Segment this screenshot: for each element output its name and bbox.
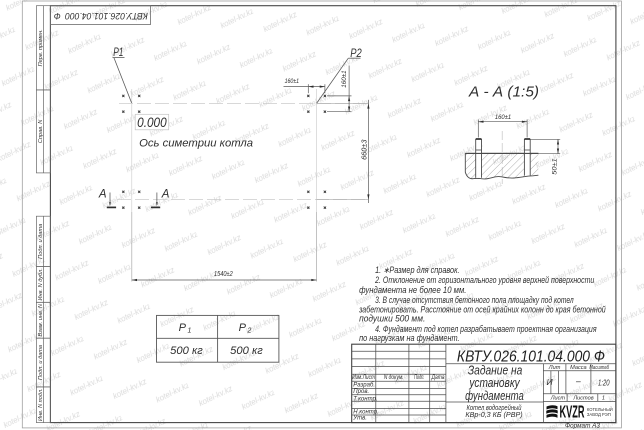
svg-text:P1: P1 (113, 47, 123, 59)
svg-text:Инв. N дубл.: Инв. N дубл. (38, 268, 44, 300)
svg-text:ЗАВОД РЭП: ЗАВОД РЭП (587, 412, 611, 417)
svg-text:50±1: 50±1 (551, 158, 558, 175)
svg-text:КВТУ.026.101.04.000 Ф: КВТУ.026.101.04.000 Ф (54, 10, 148, 21)
svg-text:Пров.: Пров. (353, 389, 369, 395)
svg-text:А - А (1:5): А - А (1:5) (468, 84, 539, 101)
svg-text:Н.контр.: Н.контр. (353, 409, 378, 415)
svg-text:KVZR: KVZR (560, 402, 585, 422)
svg-text:Масса: Масса (570, 365, 587, 371)
svg-text:160±1: 160±1 (285, 78, 300, 85)
svg-text:Утв.: Утв. (352, 416, 367, 422)
svg-text:Листов: Листов (572, 395, 593, 401)
svg-text:Лист: Лист (550, 395, 566, 401)
svg-text:по нагрузкам на фундамент.: по нагрузкам на фундамент. (359, 333, 460, 343)
svg-text:660±3: 660±3 (361, 139, 368, 159)
svg-text:P2: P2 (350, 48, 362, 60)
svg-text:Перв. примен.: Перв. примен. (38, 29, 44, 66)
svg-text:Справ. N: Справ. N (38, 119, 44, 143)
svg-text:500 кг: 500 кг (230, 345, 263, 357)
svg-text:1540±2: 1540±2 (214, 271, 233, 278)
svg-text:Масштаб: Масштаб (589, 365, 609, 371)
svg-text:КОТЕЛЬНЫЙ: КОТЕЛЬНЫЙ (587, 405, 613, 412)
svg-text:160±1: 160±1 (495, 114, 511, 121)
svg-text:А: А (161, 189, 170, 201)
svg-text:Лит: Лит (548, 365, 561, 371)
svg-text:Инв. N подл.: Инв. N подл. (38, 388, 44, 421)
svg-text:N докум.: N докум. (384, 375, 404, 381)
svg-text:И: И (547, 377, 554, 387)
svg-text:1: 1 (602, 395, 605, 401)
svg-text:1:20: 1:20 (598, 377, 610, 387)
svg-text:160±1: 160±1 (341, 70, 348, 88)
svg-text:Формат А3: Формат А3 (565, 423, 600, 430)
svg-text:фундамента не более 10 мм.: фундамента не более 10 мм. (359, 285, 466, 295)
svg-text:Подп. и дата: Подп. и дата (38, 224, 44, 259)
svg-text:Котел водогрейный: Котел водогрейный (467, 404, 522, 412)
svg-text:Подп. и дата: Подп. и дата (38, 345, 44, 380)
svg-text:Т.контр.: Т.контр. (353, 396, 377, 402)
svg-text:0.000: 0.000 (137, 115, 167, 130)
svg-text:–: – (575, 376, 581, 386)
svg-text:2. Отклонение от горизонтально: 2. Отклонение от горизонтального уровня … (374, 275, 594, 285)
svg-text:Разраб.: Разраб. (353, 382, 375, 388)
svg-text:3. В случае отсутствия бетонно: 3. В случае отсутствия бетонного пола пл… (375, 295, 574, 305)
svg-text:Взам. инв. N: Взам. инв. N (38, 303, 44, 337)
svg-text:подушки 500 мм.: подушки 500 мм. (359, 314, 425, 324)
svg-text:Ось симетрии котла: Ось симетрии котла (139, 138, 253, 150)
svg-text:фундамента: фундамента (465, 389, 524, 403)
svg-text:Подп.: Подп. (414, 375, 424, 381)
svg-text:Дата: Дата (431, 375, 445, 381)
svg-text:Изм.Лист: Изм.Лист (352, 375, 375, 381)
svg-text:КВр-0,3 КБ (РВР): КВр-0,3 КБ (РВР) (465, 412, 522, 419)
svg-text:А: А (98, 189, 107, 201)
svg-text:1. ∗Размер для справок.: 1. ∗Размер для справок. (375, 265, 460, 275)
svg-text:500 кг: 500 кг (170, 345, 203, 357)
